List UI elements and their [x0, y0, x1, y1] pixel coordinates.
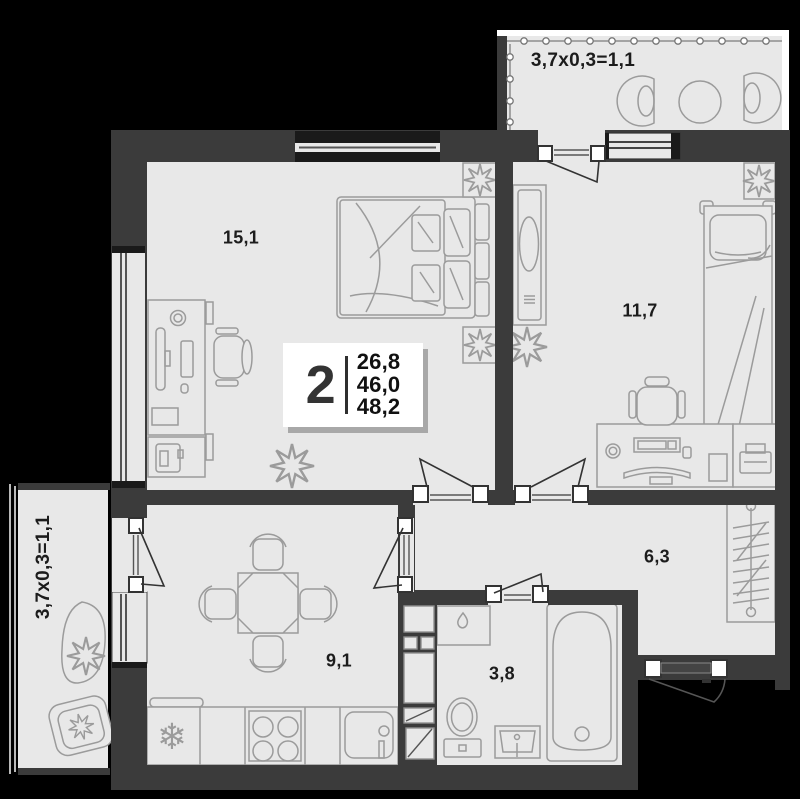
- full-area-value: 48,2: [357, 396, 401, 419]
- window-kitchen-left: [112, 586, 147, 668]
- total-area-value: 46,0: [357, 374, 401, 397]
- nightstand-bedroom: [743, 163, 775, 199]
- balcony-top-label: 3,7x0,3=1,1: [531, 50, 635, 72]
- floor-plan-canvas: ❄: [0, 0, 800, 799]
- desk-bedroom: [597, 424, 733, 487]
- kitchen-sink: [345, 712, 393, 758]
- kitchen-area-label: 9,1: [326, 651, 352, 672]
- washing-machine: [437, 606, 490, 645]
- dining-table: [238, 573, 298, 633]
- info-divider: [345, 356, 348, 414]
- living-area-value: 26,8: [357, 351, 401, 374]
- window-bedroom-top: [600, 133, 680, 159]
- living-room-area-label: 15,1: [223, 228, 259, 249]
- window-living-top: [295, 131, 440, 162]
- double-bed: [337, 197, 489, 318]
- hallway-area-label: 6,3: [644, 547, 670, 568]
- fridge-icon: ❄: [157, 717, 187, 758]
- rooms-count: 2: [306, 358, 336, 412]
- balcony-left-label: 3,7x0,3=1,1: [33, 515, 55, 619]
- printer-unit-living: [148, 437, 205, 477]
- apartment-info-box: 2 26,8 46,0 48,2: [283, 343, 423, 427]
- printer-table-bedroom: [733, 424, 777, 487]
- nightstand-bottom: [463, 327, 497, 363]
- bathtub: [547, 604, 617, 761]
- window-living-left: [112, 246, 145, 488]
- area-values: 26,8 46,0 48,2: [357, 351, 401, 420]
- bedroom-area-label: 11,7: [622, 301, 657, 322]
- balcony-table: [679, 81, 721, 123]
- coat-rack: [727, 497, 775, 622]
- wardrobe: [513, 185, 546, 325]
- plant-living: [270, 444, 314, 488]
- ventilation-shaft: [404, 606, 434, 759]
- bathroom-area-label: 3,8: [489, 664, 515, 685]
- bathroom-sink: [495, 726, 540, 758]
- hallway-floor-a: [415, 505, 775, 590]
- nightstand-top: [463, 163, 497, 197]
- svg-text:❄: ❄: [157, 717, 187, 758]
